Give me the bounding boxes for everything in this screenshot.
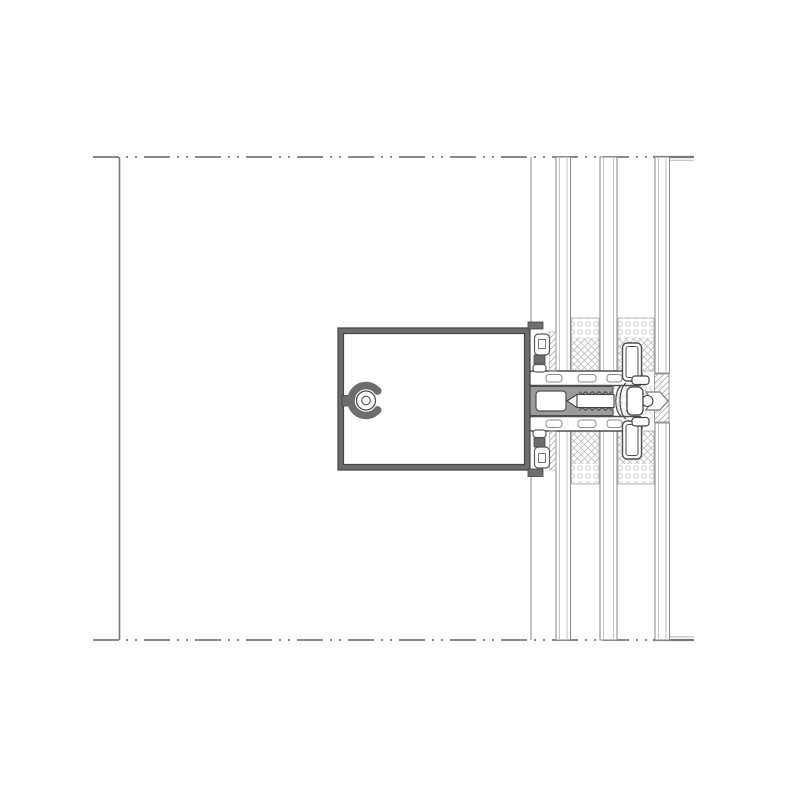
boss-pilot-hole bbox=[362, 396, 371, 405]
boss-hook-tip bbox=[373, 406, 381, 414]
washer-notch bbox=[642, 396, 653, 407]
toggle-hook-lower bbox=[632, 418, 649, 427]
toggle-hook-upper bbox=[632, 376, 649, 385]
screw-washer-head bbox=[627, 387, 643, 415]
gasket-sealant-hatch bbox=[550, 431, 557, 470]
screw-channel-chamber bbox=[536, 391, 566, 411]
profile-top-lip bbox=[528, 322, 543, 329]
boss-hook-tip bbox=[373, 387, 381, 395]
screw-shank bbox=[577, 395, 614, 408]
gasket-sealant-hatch bbox=[550, 332, 557, 371]
curtain-wall-section-drawing bbox=[0, 0, 800, 800]
curtain-wall-detail-svg bbox=[0, 0, 800, 800]
profile-bottom-lip bbox=[528, 469, 543, 477]
